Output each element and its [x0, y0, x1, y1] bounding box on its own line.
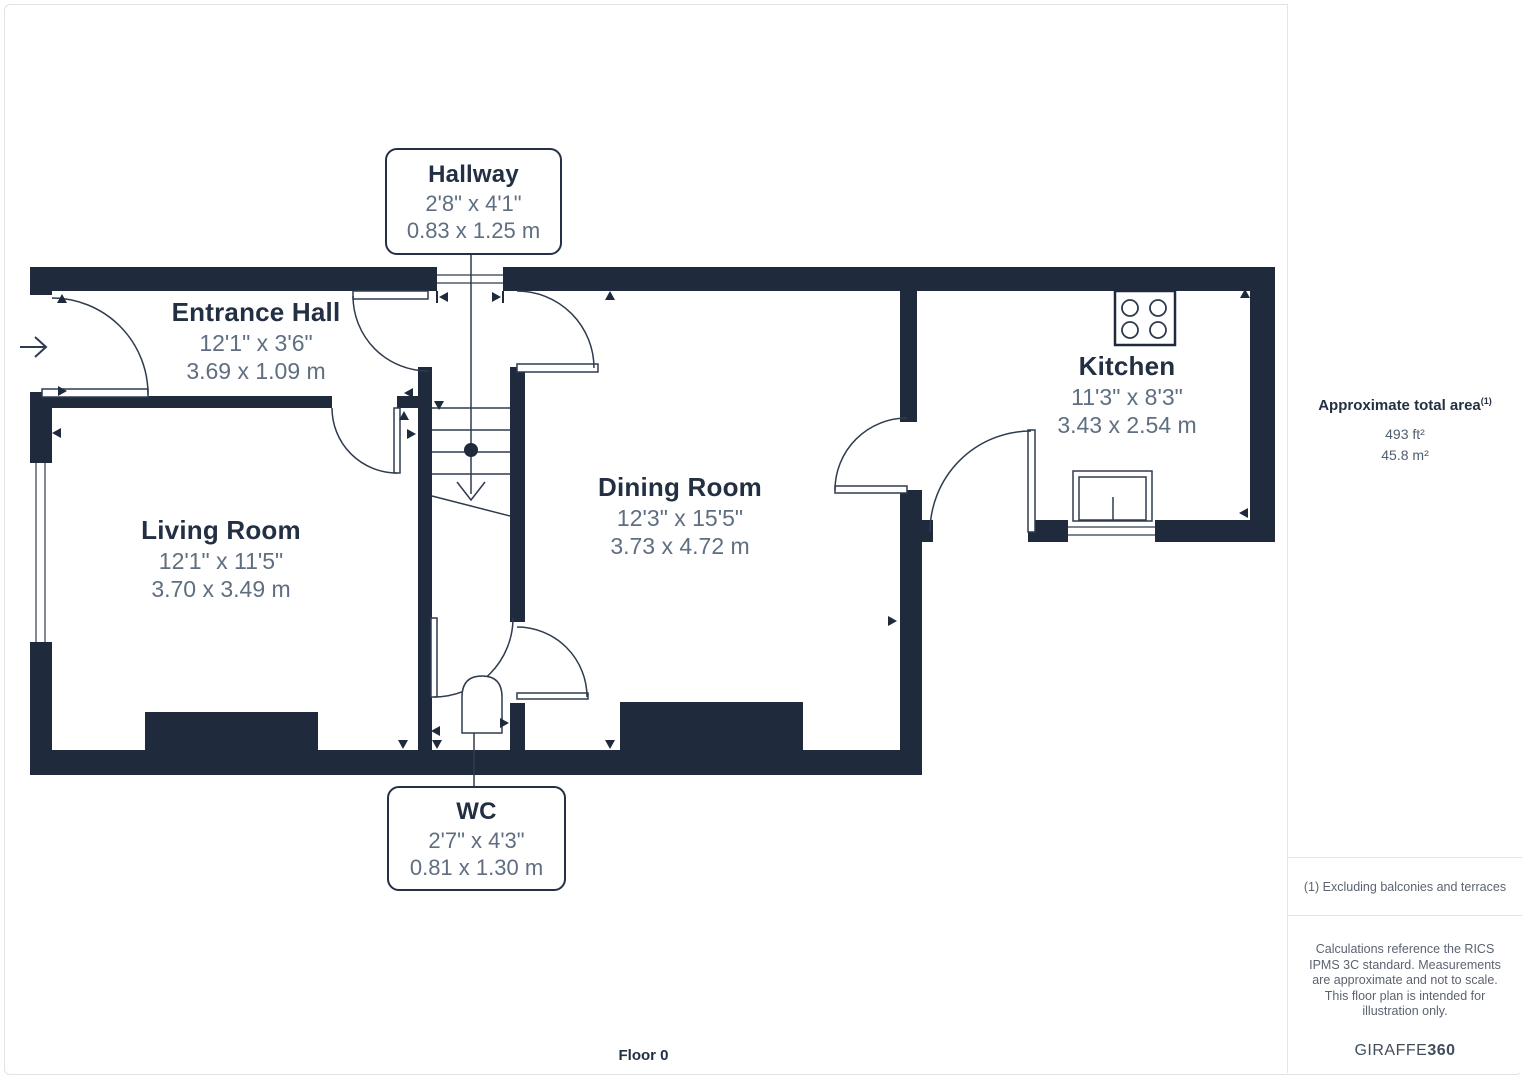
room-label-living-room: Living Room 12'1" x 11'5" 3.70 x 3.49 m — [141, 514, 301, 603]
kitchen-window — [1068, 519, 1155, 543]
room-label-entrance-hall: Entrance Hall 12'1" x 3'6" 3.69 x 1.09 m — [172, 296, 341, 385]
living-room-door-leaf — [394, 408, 400, 473]
disclaimer-section: Calculations reference the RICS IPMS 3C … — [1288, 915, 1522, 1073]
hallway-top-window — [437, 266, 503, 292]
lobby-door-leaf — [517, 693, 588, 699]
floor-label: Floor 0 — [0, 1047, 1287, 1064]
room-dimensions-imperial: 2'7" x 4'3" — [428, 827, 524, 854]
room-dimensions-imperial: 11'3" x 8'3" — [1057, 383, 1196, 411]
room-dimensions-metric: 3.69 x 1.09 m — [172, 357, 341, 385]
room-name: Dining Room — [598, 471, 762, 504]
room-dimensions-imperial: 12'1" x 11'5" — [141, 547, 301, 575]
room-label-kitchen: Kitchen 11'3" x 8'3" 3.43 x 2.54 m — [1057, 350, 1196, 439]
room-dimensions-metric: 3.70 x 3.49 m — [141, 575, 301, 603]
room-name: Entrance Hall — [172, 296, 341, 329]
brand-name: GIRAFFE — [1354, 1042, 1427, 1059]
wc-door-leaf — [431, 618, 437, 697]
room-name: WC — [456, 796, 496, 827]
total-area-title-text: Approximate total area — [1318, 397, 1481, 414]
dining-room-door-leaf — [517, 364, 598, 372]
room-dimensions-metric: 0.81 x 1.30 m — [410, 854, 543, 881]
room-dimensions-imperial: 2'8" x 4'1" — [425, 190, 521, 217]
room-dimensions-imperial: 12'3" x 15'5" — [598, 504, 762, 532]
room-name: Kitchen — [1057, 350, 1196, 383]
room-dimensions-imperial: 12'1" x 3'6" — [172, 329, 341, 357]
toilet-icon — [462, 676, 502, 733]
kitchen-door-leaf — [835, 486, 907, 493]
sidebar: Approximate total area(1) 493 ft² 45.8 m… — [1287, 4, 1522, 1073]
stove-icon — [1115, 291, 1175, 345]
brand-suffix: 360 — [1427, 1042, 1455, 1059]
entrance-hall-door-leaf — [353, 291, 428, 299]
room-name: Living Room — [141, 514, 301, 547]
chimney-breast-dining — [620, 702, 803, 750]
total-area-ft: 493 ft² — [1385, 424, 1425, 445]
total-area-section: Approximate total area(1) 493 ft² 45.8 m… — [1288, 4, 1522, 857]
total-area-title: Approximate total area(1) — [1318, 396, 1492, 414]
room-dimensions-metric: 0.83 x 1.25 m — [407, 217, 540, 244]
kitchen-back-door-leaf — [1028, 430, 1035, 532]
room-label-dining-room: Dining Room 12'3" x 15'5" 3.73 x 4.72 m — [598, 471, 762, 560]
kitchen-back-door-opening — [933, 519, 1028, 543]
front-door-leaf — [42, 389, 148, 397]
giraffe360-logo: GIRAFFE360 — [1308, 1042, 1502, 1060]
room-dimensions-metric: 3.43 x 2.54 m — [1057, 411, 1196, 439]
total-area-footnote-ref: (1) — [1481, 396, 1492, 406]
room-dimensions-metric: 3.73 x 4.72 m — [598, 532, 762, 560]
footnote: (1) Excluding balconies and terraces — [1288, 857, 1522, 915]
chimney-breast-living — [145, 712, 318, 750]
room-callout-hallway: Hallway 2'8" x 4'1" 0.83 x 1.25 m — [385, 148, 562, 255]
hallway-label-anchor-dot — [464, 443, 478, 457]
disclaimer-text: Calculations reference the RICS IPMS 3C … — [1308, 942, 1502, 1020]
total-area-m: 45.8 m² — [1381, 445, 1428, 466]
living-room-window — [29, 463, 53, 642]
room-name: Hallway — [428, 159, 519, 190]
sink-unit-icon — [1073, 471, 1152, 521]
room-callout-wc: WC 2'7" x 4'3" 0.81 x 1.30 m — [387, 786, 566, 891]
